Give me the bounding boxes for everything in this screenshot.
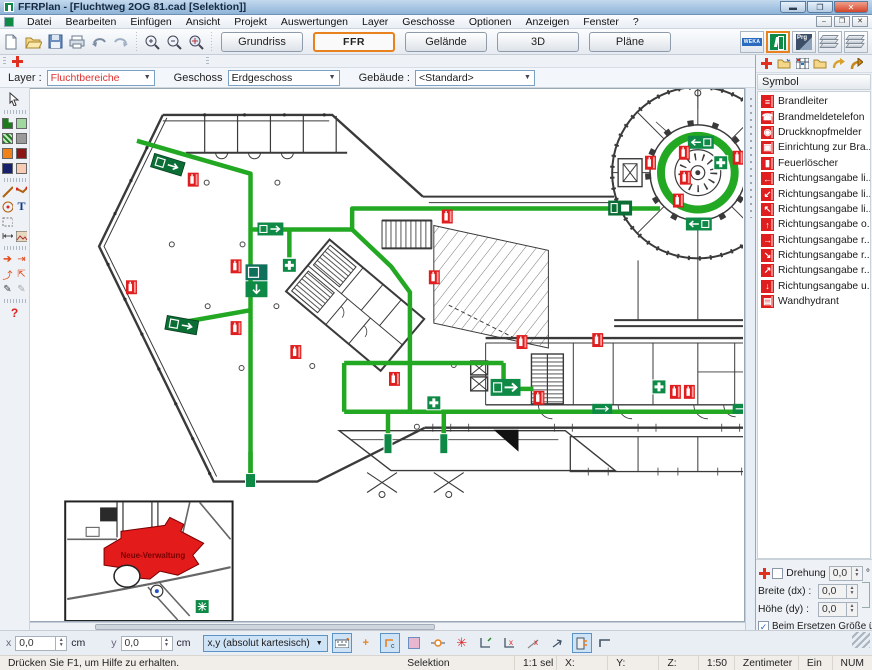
layer-color-tool-6[interactable] [15,147,28,160]
status-help: Drücken Sie F1, um Hilfe zu erhalten. [0,656,399,670]
menu-hilfe[interactable]: ? [626,15,646,29]
exit-door-markers [246,434,448,488]
sheets-icon [847,35,865,49]
arrow-up-right-icon: ↗ [761,264,774,277]
line-tool[interactable] [1,185,14,198]
symbol-item-richtung-links[interactable]: ←Richtungsangabe li... [758,171,870,186]
menu-datei[interactable]: Datei [20,15,59,29]
drawing-toolbox: T ➔ ⇥ ⤴ ⇱ ✎ ✎ ? [0,88,30,630]
drehung-input[interactable]: 0,0▲▼ [829,566,863,581]
menu-layer[interactable]: Layer [355,15,395,29]
empty-slot [15,215,28,228]
symbol-item-richtung-rechts-unten[interactable]: ↘Richtungsangabe r... [758,248,870,263]
x-unit: cm [71,637,85,649]
snap-corner-toggle[interactable]: c [380,633,400,653]
menu-optionen[interactable]: Optionen [462,15,519,29]
snap-all-toggle[interactable]: ✳ [452,633,472,653]
polyline-tool[interactable] [15,185,28,198]
prg-button[interactable]: Prg [792,31,816,53]
symbol-item-druckknopfmelder[interactable]: ◉Druckknopfmelder [758,125,870,140]
zoom-in-icon[interactable] [142,32,162,51]
arrow-left-icon: ← [761,172,774,185]
layer-label: Layer : [8,72,42,84]
symbol-panel-toolbar [756,55,872,73]
hoehe-input[interactable]: 0,0▲▼ [818,602,858,617]
status-mode: Selektion [399,656,515,670]
site-inset-map: Neue-Verwaltung [65,501,232,621]
symbol-item-einrichtung[interactable]: ▣Einrichtung zur Bra... [758,140,870,155]
menu-anzeigen[interactable]: Anzeigen [518,15,576,29]
layers-stack-button[interactable] [818,31,842,53]
drehung-label: Drehung [786,568,826,579]
wall-points [106,113,325,475]
floor-plan: Neue-Verwaltung [30,89,743,621]
view-button-grundriss[interactable]: Grundriss [221,32,303,52]
y-unit: cm [177,637,191,649]
round-tower [612,89,743,258]
window-title: FFRPlan - [Fluchtweg 2OG 81.cad [Selekti… [18,1,246,13]
layer-color-tool-7[interactable] [1,162,14,175]
coordinate-mode-select[interactable]: x,y (absolut kartesisch) ▼ [203,635,328,652]
toolbar-separator [134,32,139,52]
druckknopfmelder-icon: ◉ [761,126,774,139]
image-tool[interactable] [15,230,28,243]
link-dimensions-icon[interactable] [862,582,870,608]
menu-bearbeiten[interactable]: Bearbeiten [59,15,124,29]
symbol-table-icon[interactable] [794,56,810,71]
main-toolbar: Grundriss FFR Gelände 3D Pläne WEKA Prg [0,29,872,55]
ffr-mode-button[interactable] [766,31,790,53]
wandhydrant-icon: ▤ [761,295,774,308]
arrow-down-left-icon: ↙ [761,188,774,201]
brandmeldetelefon-icon: ☎ [761,111,774,124]
toolbox-grip [4,299,26,303]
help-tool[interactable]: ? [8,306,21,319]
status-y: Y: [608,656,659,670]
undo-icon[interactable] [89,32,109,51]
drawing-canvas[interactable]: Neue-Verwaltung [30,88,745,622]
chevron-down-icon: ▼ [329,74,336,81]
layer-color-tool-4[interactable] [15,132,28,145]
inset-building-label: Neue-Verwaltung [121,551,186,560]
symbol-item-richtung-oben[interactable]: ↑Richtungsangabe o... [758,217,870,232]
toolbox-grip [4,110,26,114]
menu-bar: Datei Bearbeiten Einfügen Ansicht Projek… [0,15,872,29]
arrow-up-left-icon: ↖ [761,203,774,216]
layer-select[interactable]: Fluchtbereiche ▼ [47,70,155,86]
weka-button[interactable]: WEKA [740,31,764,53]
geschoss-label: Geschoss [174,72,223,84]
menu-fenster[interactable]: Fenster [576,15,626,29]
status-selection-count: 1:1 sel [515,656,557,670]
pick-style-tool[interactable]: ✎ [1,283,14,296]
apply-style-tool[interactable]: ✎ [15,283,28,296]
keyboard-entry-toggle[interactable] [332,633,352,653]
chevron-down-icon: ▼ [524,74,531,81]
corner-tool-toggle[interactable] [596,633,616,653]
new-file-icon[interactable] [1,32,21,51]
menu-auswertungen[interactable]: Auswertungen [274,15,355,29]
open-file-icon[interactable] [23,32,43,51]
angle-ref-toggle[interactable]: x [500,633,520,653]
text-tool[interactable]: T [15,200,28,213]
horizontal-scrollbar[interactable] [30,622,745,630]
x-label: x [6,637,11,649]
document-icon [4,17,14,27]
arrow-down-right-icon: ↘ [761,249,774,262]
coordinate-mode-value: x,y (absolut kartesisch) [208,638,310,649]
arrow-down-icon: ↓ [761,280,774,293]
title-bar: FFRPlan - [Fluchtweg 2OG 81.cad [Selekti… [0,0,872,15]
layer-color-tool-8[interactable] [15,162,28,175]
fill-toggle[interactable] [404,633,424,653]
move-tool[interactable]: ➔ [1,253,14,266]
angle-snap-toggle[interactable] [476,633,496,653]
drehung-checkbox[interactable] [772,568,783,579]
select-tool[interactable] [5,91,25,107]
add-icon[interactable] [759,568,768,579]
assembly-point-icon [196,600,209,613]
panel-splitter[interactable] [745,88,755,630]
layer-color-tool-2[interactable] [15,117,28,130]
resize-grip[interactable] [852,632,870,648]
symbol-item-richtung-rechts-oben[interactable]: ↗Richtungsangabe r... [758,263,870,278]
toolbox-grip [4,178,26,182]
rectangle-tool[interactable] [1,215,14,228]
geschoss-value: Erdgeschoss [232,72,293,84]
hoehe-label: Höhe (dy) : [758,604,815,615]
toolbox-grip [4,246,26,250]
save-icon[interactable] [45,32,65,51]
add-symbol-icon[interactable] [12,56,23,67]
symbol-item-feuerloescher[interactable]: ▮Feuerlöscher [758,156,870,171]
symbol-panel-header: Symbol [757,74,871,90]
geschoss-select[interactable]: Erdgeschoss ▼ [228,70,340,86]
symbol-item-richtung-links-unten[interactable]: ↙Richtungsangabe li... [758,186,870,201]
mdi-minimize-button[interactable]: – [816,16,832,27]
chevron-down-icon: ▼ [316,640,323,647]
gebaeude-label: Gebäude : [359,72,410,84]
svg-text:x: x [509,638,513,647]
coordinate-bar: x 0,0▲▼ cm y 0,0▲▼ cm x,y (absolut karte… [0,630,872,655]
copy-move-tool[interactable]: ⇥ [15,253,28,266]
status-ein: Ein [799,656,833,670]
mdi-restore-button[interactable]: ❐ [834,16,850,27]
layer-color-tool-3[interactable] [1,132,14,145]
symbol-list: ≡Brandleiter ☎Brandmeldetelefon ◉Druckkn… [757,91,871,559]
layer-bar: Layer : Fluchtbereiche ▼ Geschoss Erdges… [0,68,755,88]
symbol-item-richtung-links-oben[interactable]: ↖Richtungsangabe li... [758,202,870,217]
view-button-plaene[interactable]: Pläne [589,32,671,52]
view-button-gelaende[interactable]: Gelände [405,32,487,52]
menu-ansicht[interactable]: Ansicht [179,15,227,29]
close-button[interactable]: ✕ [834,1,868,13]
svg-text:c: c [391,643,395,649]
zoom-extents-icon[interactable] [186,32,206,51]
minimize-button[interactable]: ▬ [780,1,806,13]
einrichtung-icon: ▣ [761,141,774,154]
direction-toggle[interactable] [548,633,568,653]
status-bar: Drücken Sie F1, um Hilfe zu erhalten. Se… [0,655,872,670]
ortho-x-toggle[interactable]: x [524,633,544,653]
fire-symbols [126,146,743,405]
zoom-out-icon[interactable] [164,32,184,51]
toolbar-grip[interactable] [3,57,6,66]
prg-icon: Prg [796,34,812,50]
layer-color-tool-5[interactable] [1,147,14,160]
arrow-up-icon: ↑ [761,218,774,231]
symbol-item-richtung-unten[interactable]: ↓Richtungsangabe u... [758,279,870,294]
print-icon[interactable] [67,32,87,51]
sheets-stack-button[interactable] [844,31,868,53]
menu-einfuegen[interactable]: Einfügen [123,15,178,29]
toolbar-separator [209,32,214,52]
dimension-tool[interactable] [1,230,14,243]
sub-toolbar [0,55,755,68]
stack-icon [821,35,839,49]
app-icon [4,2,14,12]
gebaeude-value: <Standard> [419,72,474,84]
add-symbol-button[interactable] [758,56,774,71]
view-button-3d[interactable]: 3D [497,32,579,52]
layer-color-tool-1[interactable] [1,117,14,130]
y-label: y [111,637,116,649]
open-library-icon[interactable] [812,56,828,71]
snap-point-toggle[interactable] [428,633,448,653]
symbol-item-brandmeldetelefon[interactable]: ☎Brandmeldetelefon [758,109,870,124]
menu-projekt[interactable]: Projekt [227,15,274,29]
status-x: X: [557,656,608,670]
view-button-ffr[interactable]: FFR [313,32,395,52]
maximize-button[interactable]: ❐ [807,1,833,13]
menu-geschosse[interactable]: Geschosse [395,15,462,29]
chevron-down-icon: ▼ [144,74,151,81]
stretch-tool[interactable]: ⇱ [15,268,28,281]
gebaeude-select[interactable]: <Standard> ▼ [415,70,535,86]
breite-label: Breite (dx) : [758,586,815,597]
arrow-right-icon: → [761,234,774,247]
y-input[interactable]: 0,0▲▼ [121,636,173,651]
exit-sign-icon [770,34,786,50]
export-all-icon[interactable] [848,56,864,71]
symbol-item-richtung-rechts[interactable]: →Richtungsangabe r... [758,233,870,248]
status-unit: Zentimeter [735,656,799,670]
redo-icon[interactable] [111,32,131,51]
degree-unit: ° [866,568,870,579]
status-num: NUM [833,656,872,670]
symbol-properties: Drehung 0,0▲▼ ° Breite (dx) : 0,0▲▼ Höhe… [756,559,872,634]
rotate-tool[interactable]: ⤴ [1,268,14,281]
breite-input[interactable]: 0,0▲▼ [818,584,858,599]
weka-logo: WEKA [742,38,762,46]
brandleiter-icon: ≡ [761,95,774,108]
snap-grid-toggle[interactable]: + [356,633,376,653]
status-scale: 1:50 [699,656,735,670]
feuerloescher-icon: ▮ [761,157,774,170]
symbol-item-wandhydrant[interactable]: ▤Wandhydrant [758,294,870,309]
export-icon[interactable] [830,56,846,71]
symbol-panel: Symbol ≡Brandleiter ☎Brandmeldetelefon ◉… [755,55,872,645]
door-tool-toggle[interactable] [572,633,592,653]
circle-tool[interactable] [1,200,14,213]
symbol-item-brandleiter[interactable]: ≡Brandleiter [758,94,870,109]
new-folder-icon[interactable] [776,56,792,71]
svg-text:x: x [534,638,538,647]
mdi-close-button[interactable]: ✕ [852,16,868,27]
layer-value: Fluchtbereiche [51,72,120,84]
toolbar-grip[interactable] [206,57,209,66]
x-input[interactable]: 0,0▲▼ [15,636,67,651]
status-z: Z: [659,656,698,670]
